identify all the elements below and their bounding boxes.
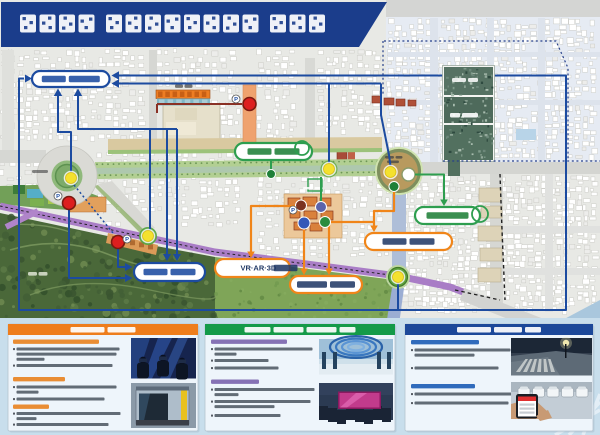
svg-text:P: P [291,208,295,214]
svg-text:P: P [234,97,238,103]
svg-text:P: P [56,194,60,200]
svg-text:VR·AR·3D: VR·AR·3D [241,264,277,273]
svg-text:P: P [125,237,129,243]
